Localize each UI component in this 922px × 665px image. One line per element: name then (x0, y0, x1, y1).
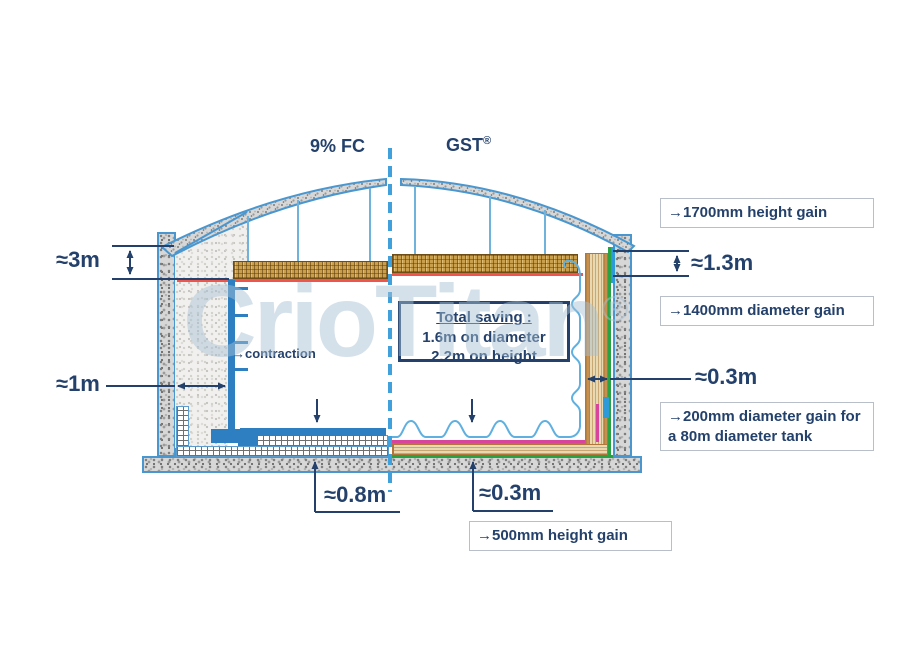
callout-diameter-gain-tank: →200mm diameter gain for a 80m diameter … (660, 402, 874, 451)
dim-fc-floor-insulation: ≈0.8m (324, 484, 386, 506)
registered-mark: ® (483, 135, 491, 147)
dim-fc-wall-insulation: ≈1m (56, 373, 100, 395)
dim-gst-floor-insulation: ≈0.3m (479, 482, 541, 504)
callout-height-gain-bottom: →500mm height gain (469, 521, 672, 551)
membrane-wave-floor (392, 421, 580, 437)
total-saving-box: Total saving : 1.6m on diameter 2.2m on … (398, 301, 570, 362)
gst-system-label: GST® (446, 136, 491, 154)
dome-roof-left (162, 179, 386, 256)
tank-comparison-diagram: 9% FC GST® ≈3m ≈1m ≈1.3m ≈0.3m ≈0.8m ≈0.… (0, 0, 922, 665)
dome-roof-right (401, 179, 634, 252)
perlite-top-boundary (175, 212, 247, 253)
total-saving-diameter: 1.6m on diameter (401, 328, 567, 348)
dimension-lines (106, 246, 691, 512)
fc-system-label: 9% FC (310, 137, 365, 155)
dim-gst-wall-insulation: ≈0.3m (695, 366, 757, 388)
dim-fc-roof-insulation: ≈3m (56, 249, 100, 271)
callout-diameter-gain: →1400mm diameter gain (660, 296, 874, 326)
callout-height-gain-top: →1700mm height gain (660, 198, 874, 228)
contraction-label: →contraction (232, 346, 316, 361)
dim-gst-height-gain: ≈1.3m (691, 252, 753, 274)
total-saving-height: 2.2m on height (401, 347, 567, 367)
total-saving-title: Total saving : (401, 308, 567, 328)
